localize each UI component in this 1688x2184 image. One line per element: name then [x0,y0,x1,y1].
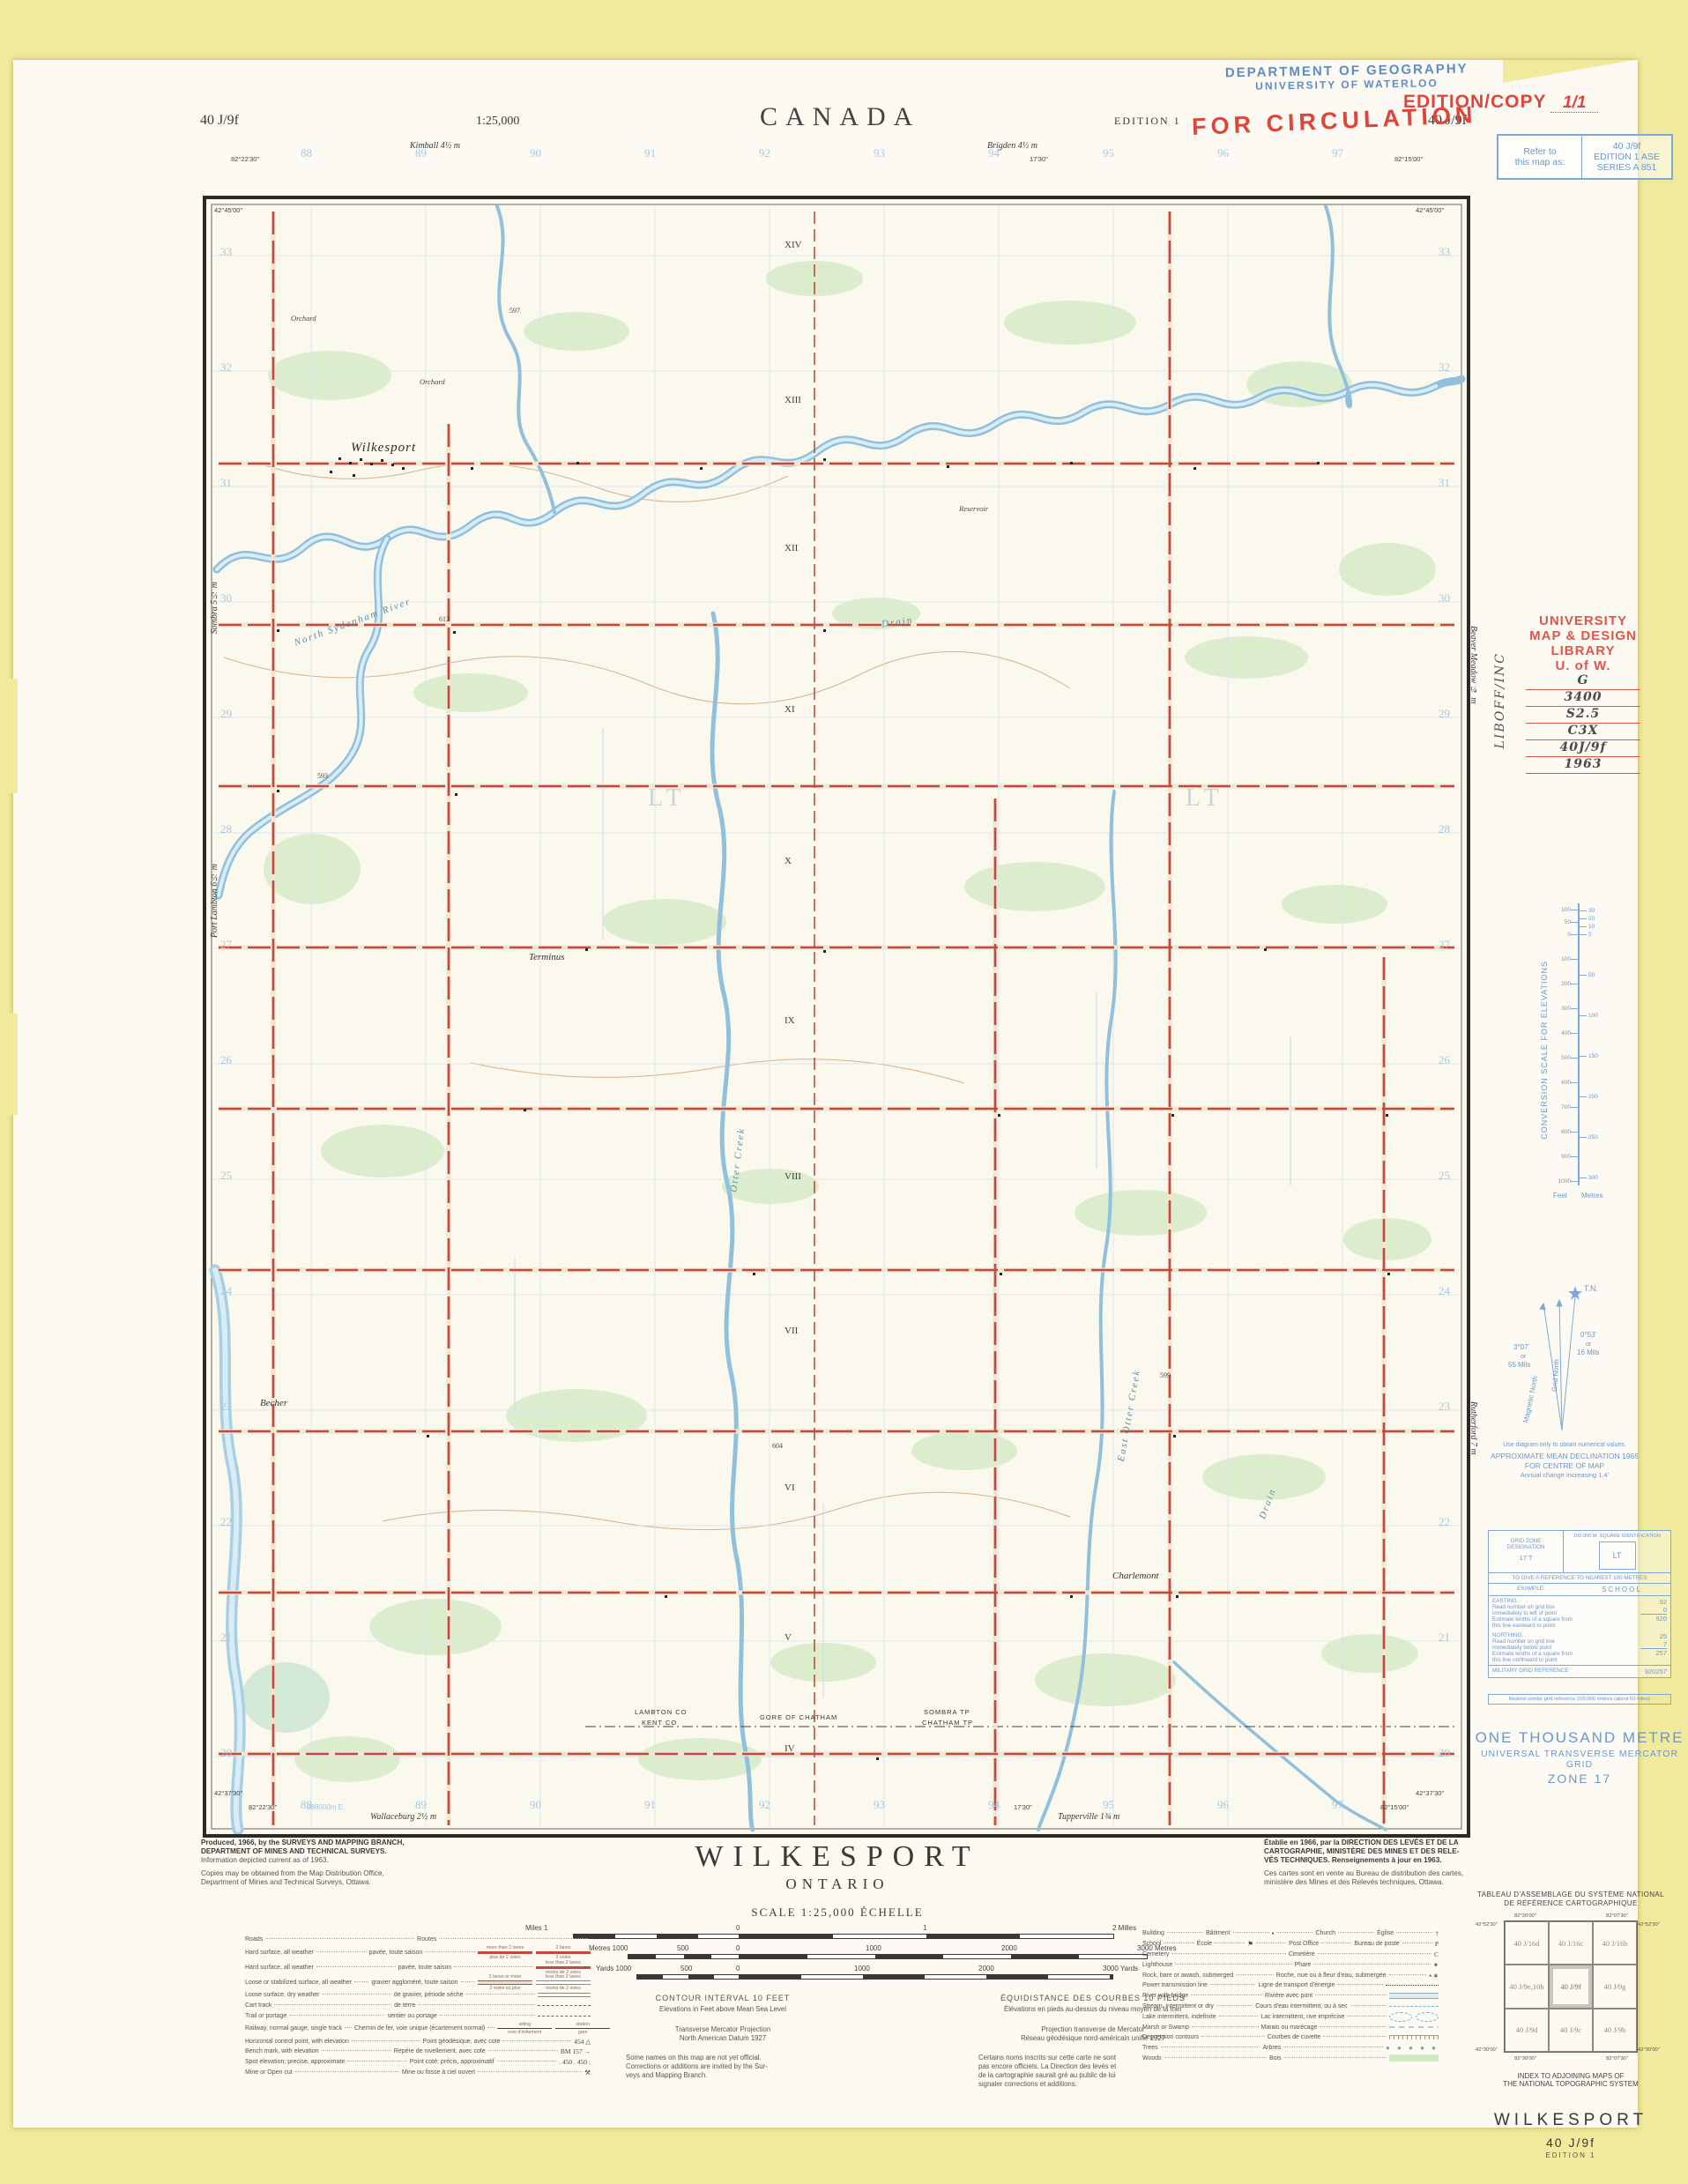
call-number-line: S2.5 [1526,707,1640,724]
credit-line: Établie en 1966, par la DIRECTION DES LE… [1264,1839,1484,1847]
legend-label-fr: Point géodésique, avec cote [423,2039,501,2045]
index-cell: 40 J/9c [1549,2009,1593,2052]
easting-text: this line eastward to point [1492,1623,1640,1629]
map-title: WILKESPORT [617,1840,1058,1874]
legend-row: Depression contoursCourbes de cuvette [1142,2032,1439,2043]
legend-row: Loose or stabilized surface, all weather… [245,1975,591,1990]
corner-coordinate: 82°22'30" [249,1803,277,1811]
mgr-label: MILITARY GRID REFERENCE [1492,1668,1568,1675]
utm-note-line: UNIVERSAL TRANSVERSE MERCATOR GRID [1474,1749,1685,1770]
legend-symbol: ▪ ∗ [1429,1972,1439,1980]
legend-label-fr: École [1197,1941,1213,1947]
miles-tick: 1 [923,1924,926,1932]
elevation-note-en: Elevations in Feet above Mean Sea Level [608,2005,837,2013]
projection-note-en: Transverse Mercator Projection [608,2025,837,2033]
northing-values: 25 7 257 [1640,1632,1667,1663]
call-number-line: G [1526,673,1640,690]
example-row: EXAMPLE: SCHOOL [1489,1584,1670,1596]
grid-reference-box: GRID ZONE DESIGNATION 17 T 100,000 M. SQ… [1488,1530,1671,1678]
mat-notch [7,679,18,793]
index-caption: INDEX TO ADJOINING MAPS OF [1474,2072,1668,2080]
legend-symbol-value: ▪ [1272,1929,1275,1937]
declination-note: APPROXIMATE MEAN DECLINATION 1965 [1459,1452,1670,1460]
easting-label: EASTING. [1492,1598,1640,1604]
easting-value: 92 [1640,1598,1667,1606]
footer-edition: EDITION 1 [1474,2151,1668,2159]
legend-row: Mine or Open cutMine ou fosse à ciel ouv… [245,2068,591,2078]
call-number-line: 1963 [1526,757,1640,774]
footer-identification: WILKESPORT 40 J/9f EDITION 1 [1474,2111,1668,2159]
index-cell: 40 J/9g [1593,1965,1637,2008]
magnetic-declination: 55 Mils [1508,1361,1530,1369]
legend-label-en: Cemetery [1142,1951,1169,1957]
names-note-en: Corrections or additions are invited by … [608,2062,855,2070]
sheet-number-left: 40 J/9f [200,113,239,129]
northing-label: NORTHING. [1492,1632,1640,1638]
legend-label-en: Woods [1142,2055,1162,2061]
declination-note: Annual change increasing 1.4' [1459,1471,1670,1479]
legend-symbol-value: 454 △ [574,2038,591,2046]
map-canvas [206,199,1467,1834]
legend-label-en: Marsh or Swamp [1142,2024,1189,2031]
northing-text: Estimate tenths of a square from [1492,1651,1640,1657]
legend-label-en: Power transmission line [1142,1982,1208,1988]
index-cell: 40 J/9d [1505,2009,1549,2052]
legend-label-fr: Chemin de fer, voie unique (écartement n… [354,2025,485,2032]
legend-label-en: Roads [245,1936,263,1943]
yards-tick: 0 [736,1965,740,1972]
credit-line: Department of Mines and Technical Survey… [201,1878,421,1887]
metres-unit: Metres [1581,1192,1602,1200]
legend-row: SchoolÉcole⚑Post OfficeBureau de posteP [1142,1939,1439,1950]
call-number-line: 40J/9f [1526,740,1640,757]
easting-text: immediately to left of point [1492,1610,1640,1616]
credit-line: Information depicted current as of 1963. [201,1856,421,1865]
legend-symbol-value: C [1434,1950,1439,1958]
miles-tick: 2 Milles [1112,1924,1136,1932]
map-title-block: WILKESPORT ONTARIO SCALE 1:25,000 ÉCHELL… [617,1840,1058,1920]
refer-line: 40 J/9f [1588,141,1666,152]
easting-total: 920 [1640,1615,1667,1623]
legend-label-en: Building [1142,1930,1164,1936]
index-map-title: TABLEAU D'ASSEMBLAGE DU SYSTÈME NATIONAL… [1474,1891,1668,1908]
yards-tick: 1000 [854,1965,870,1972]
grid-declination: or [1586,1341,1592,1348]
legend-row: LighthousePhare✶ [1142,1959,1439,1970]
legend-row: Hard surface, all weatherpavée, toute sa… [245,1960,591,1975]
legend-roads: RoadsRoutesHard surface, all weatherpavé… [245,1935,591,2077]
utm-note-line: ONE THOUSAND METRE [1474,1729,1685,1747]
legend-label-fr: Courbes de cuvette [1268,2034,1321,2040]
header-scale: 1:25,000 [476,115,519,129]
miles-bar-right [739,1934,1114,1939]
legend-label-en: Post Office [1289,1941,1319,1947]
library-stamp: UNIVERSITY MAP & DESIGN LIBRARY U. of W.… [1504,613,1662,774]
call-number: G3400S2.5C3X40J/9f1963 [1504,673,1662,774]
dept-geography-stamp: DEPARTMENT OF GEOGRAPHY UNIVERSITY OF WA… [1225,62,1469,93]
legend-label-fr: Bureau de poste [1354,1941,1399,1947]
northing-text: this line northward to point [1492,1657,1640,1663]
metres-tick: 2000 [1001,1944,1017,1952]
index-coord: 82°30'00" [1514,2056,1536,2061]
legend-label-fr: Point coté; précis, approximatif [410,2059,495,2065]
credit-line: ministère des Mines et des Relevés techn… [1264,1878,1484,1887]
easting-value: 0 [1640,1606,1667,1615]
index-title-line: TABLEAU D'ASSEMBLAGE DU SYSTÈME NATIONAL [1474,1891,1668,1899]
legend-row: TreesArbres● ● ● ● ● [1142,2043,1439,2054]
legend-label-en: Loose surface, dry weather [245,1992,319,1998]
call-number-line: C3X [1526,724,1640,740]
legend-label-fr: sentier ou portage [387,2013,436,2019]
legend-symbol-value: ⚒ [584,2069,591,2076]
legend-label-en: Hard surface, all weather [245,1950,314,1956]
metres-bar-right [739,1954,1148,1959]
legend-label-fr: Bois [1269,2055,1282,2061]
stamp-line: U. of W. [1504,658,1662,673]
legend-symbol-value: † [1435,1929,1439,1937]
legend-label-fr: Cimetière [1289,1951,1315,1957]
magnetic-north-label: Magnetic North [1521,1375,1539,1423]
legend-symbol [1389,2026,1439,2028]
legend-label-en: Railway, normal gauge, single track [245,2025,342,2032]
road-class-label: 2 lanes2 voies [536,1945,591,1960]
index-coord: 82°30'00" [1514,1913,1536,1919]
names-note-fr: de la cartographie saurait gré au public… [978,2071,1208,2079]
index-map: TABLEAU D'ASSEMBLAGE DU SYSTÈME NATIONAL… [1474,1891,1668,2159]
northing-text: immediately below point [1492,1645,1640,1651]
legend-label-fr: Phare [1295,1962,1312,1968]
refer-line: Refer to [1504,146,1576,157]
yards-tick: 3000 Yards [1103,1965,1138,1972]
legend-symbol-value: ✶ [1433,1961,1439,1969]
mgr-value: 920257 [1645,1668,1667,1675]
example-label: EXAMPLE: [1517,1586,1545,1593]
index-caption: THE NATIONAL TOPOGRAPHIC SYSTEM [1474,2080,1668,2088]
mat-notch [7,1014,18,1115]
refer-box-right: 40 J/9f EDITION 1 ASE SERIES A 851 [1581,136,1671,178]
legend-row: Rock, bare or awash, submergedRoche, nue… [1142,1970,1439,1980]
legend-symbol [1389,2035,1439,2039]
index-coord: 82°07'30" [1606,1913,1628,1919]
square-id-cell: 100,000 M. SQUARE IDENTIFICATION LT [1564,1531,1670,1572]
legend-label-en: Mine or Open cut [245,2069,293,2076]
legend-symbol: ✶ [1433,1961,1439,1969]
names-note-en: veys and Mapping Branch. [608,2071,855,2079]
legend-label-fr: de gravier, période sèche [394,1992,464,1998]
edition-copy-value: 1/1 [1550,93,1598,113]
index-cell: 40 J/9b [1593,2009,1637,2052]
legend-label-en: Rock, bare or awash, submerged [1142,1972,1233,1979]
index-coord: 42°52'30" [1476,1922,1498,1928]
call-number-line: 3400 [1526,690,1640,707]
metres-tick: 500 [677,1944,688,1952]
example-value: SCHOOL [1602,1586,1642,1593]
legend-label-en: Church [1315,1930,1335,1936]
footer-sheet-number: 40 J/9f [1474,2136,1668,2150]
grid-zone-label: GRID ZONE [1489,1538,1563,1544]
legend-symbol [1389,2012,1439,2022]
corner-coordinate: 82°15'00" [1380,1803,1409,1811]
legend-row: Hard surface, all weatherpavée, toute sa… [245,1945,591,1960]
credit-line: VÉS TECHNIQUES. Renseignements à jour en… [1264,1856,1484,1865]
declination-note: FOR CENTRE OF MAP [1459,1461,1670,1470]
legend-symbol [538,1993,591,1997]
topographic-map [203,196,1470,1838]
refer-box: Refer to this map as: 40 J/9f EDITION 1 … [1497,134,1673,180]
utm-note: ONE THOUSAND METRE UNIVERSAL TRANSVERSE … [1474,1729,1685,1786]
northing-text: Read number on grid line [1492,1638,1640,1645]
yards-tick: 500 [680,1965,692,1972]
tn-label: T.N. [1584,1284,1598,1293]
legend-label-en: Trees [1142,2045,1158,2051]
legend-symbol [1389,1993,1439,1999]
utm-note-line: ZONE 17 [1474,1772,1685,1786]
legend-row: Spot elevation; precise, approximatePoin… [245,2057,591,2068]
legend-label-fr: Église [1377,1930,1394,1936]
index-cell: 40 J/16d [1505,1921,1549,1965]
declination-diagram: T.N. 0°53' or 16 Mils 3°07' or 55 Mils G… [1476,1282,1662,1441]
corner-coordinate: 42°37'30" [1416,1789,1444,1797]
credits-french: Établie en 1966, par la DIRECTION DES LE… [1264,1839,1484,1887]
magnetic-declination: 3°07' [1513,1343,1530,1351]
legend-symbol: BM 157 → [561,2047,591,2055]
refer-line: EDITION 1 ASE [1588,152,1666,162]
legend-row: Stream, intermittent or dryCours d'eau i… [1142,2002,1439,2012]
legend-label-en: Trail or portage [245,2013,286,2019]
legend-symbol [1386,1985,1439,1986]
northing-value: 25 [1640,1632,1667,1640]
road-class-label: less than 2 lanesmoins de 2 voies [536,1974,591,1991]
legend-symbol-value: P [1435,1940,1439,1948]
credit-line: Ces cartes sont en vente au Bureau de di… [1264,1869,1484,1878]
legend-label-en: Bench mark, with elevation [245,2048,319,2054]
index-cell: 40 J/9e,10h [1505,1965,1549,2008]
corner-coordinate: 17'30" [1030,155,1048,163]
legend-label-fr: Cours d'eau intermittent, ou à sec [1255,2003,1347,2009]
road-class-label: 2 lanes or more2 voies ou plus [478,1974,532,1991]
index-coord: 42°30'00" [1638,2047,1660,2053]
corner-coordinate: 82°22'30" [231,155,259,163]
index-title-line: DE RÉFÉRENCE CARTOGRAPHIQUE [1474,1899,1668,1908]
legend-label-en: Depression contours [1142,2034,1199,2040]
legend-label-fr: Roche, nue ou à fleur d'eau, submergée [1276,1972,1387,1979]
legend-symbol-value: ⚑ [1247,1940,1253,1948]
legend-symbol: ⚒ [584,2069,591,2076]
contour-note-en: CONTOUR INTERVAL 10 FEET [608,1994,837,2002]
legend-symbol: 2 lanes or more2 voies ou plusless than … [478,1974,591,1991]
legend-row: Lake intermittent, indefiniteLac intermi… [1142,2011,1439,2022]
datum-note-en: North American Datum 1927 [608,2034,837,2042]
legend-label-en: River with bridge [1142,1993,1188,1999]
metres-label: Metres 1000 [589,1944,628,1952]
legend-label-fr: Ligne de transport d'énergie [1258,1982,1335,1988]
false-easting-label: 388000m E. [307,1803,345,1811]
road-class-label: sidingvoie d'évitement [497,2022,552,2036]
legend-symbol: . 450 . 450 : [559,2058,591,2066]
miles-tick: 0 [736,1924,740,1932]
legend-row: Power transmission lineLigne de transpor… [1142,1980,1439,1991]
metres-bar-left [628,1954,740,1959]
corner-coordinate: 42°37'30" [214,1789,242,1797]
legend-row: Railway, normal gauge, single trackChemi… [245,2021,591,2036]
corner-coordinate: 17'30" [1014,1803,1032,1811]
legend-row: Trail or portagesentier ou portage [245,2010,591,2021]
legend-symbol-value: ▪ ∗ [1429,1972,1439,1980]
credit-line: CARTOGRAPHIE, MINISTÈRE DES MINES ET DES… [1264,1847,1484,1856]
legend-row: Loose surface, dry weatherde gravier, pé… [245,1990,591,2001]
yards-bar-left [636,1974,740,1980]
index-coord: 42°52'30" [1638,1922,1660,1928]
credit-line: DEPARTMENT OF MINES AND TECHNICAL SURVEY… [201,1847,421,1856]
legend-symbol: ⚑ [1247,1940,1253,1948]
legend-row: WoodsBois [1142,2054,1439,2064]
yards-bar-right [739,1974,1113,1980]
easting-row: EASTING. Read number on grid line immedi… [1489,1596,1670,1631]
northing-total: 257 [1640,1649,1667,1657]
yards-label: Yards 1000 [596,1965,631,1972]
legend-symbol [538,2016,591,2017]
refer-line: this map as: [1504,157,1576,167]
country-title: CANADA [760,102,920,132]
feet-unit: Feet [1553,1192,1567,1200]
legend-label-fr: Marais ou marécage [1261,2024,1318,2031]
legend-label-en: Horizontal control point, with elevation [245,2039,349,2045]
legend-label-en: Spot elevation; precise, approximate [245,2059,345,2065]
legend-symbol-value: . 450 . 450 : [559,2058,591,2066]
legend-label-fr: Rivière avec pont [1265,1993,1312,1999]
legend-label-en: Hard surface, all weather [245,1965,314,1971]
easting-text: Estimate tenths of a square from [1492,1616,1640,1623]
legend-symbol [1389,2006,1439,2007]
grid-declination: 16 Mils [1577,1348,1599,1356]
legend-label-fr: Arbres [1262,2045,1281,2051]
easting-text: Read number on grid line [1492,1604,1640,1610]
footer-map-name: WILKESPORT [1474,2111,1668,2130]
legend-symbol-value: BM 157 → [561,2047,591,2055]
legend-features: BuildingBâtiment▪ChurchÉglise†SchoolÉcol… [1142,1928,1439,2063]
legend-label-en: Loose or stabilized surface, all weather [245,1980,352,1986]
legend-row: RoadsRoutes [245,1935,591,1945]
grid-reference-footer: Nearest similar grid reference 100,000 m… [1488,1694,1671,1705]
grid-zone-label: DESIGNATION [1489,1544,1563,1550]
legend-row: Bench mark, with elevationRepère de nive… [245,2047,591,2057]
road-class-label: stationgare [555,2022,610,2036]
grid-zone-row: GRID ZONE DESIGNATION 17 T 100,000 M. SQ… [1489,1531,1670,1573]
legend-row: Marsh or SwampMarais ou marécage [1142,2022,1439,2032]
index-cell-current: 40 J/9f [1549,1965,1593,2008]
edition-label: EDITION 1 [1114,115,1181,128]
legend-label-fr: Mine ou fosse à ciel ouvert [402,2069,475,2076]
reference-header: TO GIVE A REFERENCE TO NEAREST 100 METRE… [1489,1573,1670,1584]
yards-tick: 2000 [978,1965,994,1972]
square-id-value: LT [1599,1541,1636,1570]
index-map-grid: 40 J/16d40 J/16c40 J/16b40 J/9e,10h40 J/… [1504,1920,1638,2053]
legend-label-fr: gravier aggloméré, toute saison [371,1980,457,1986]
legend-label-en: Stream, intermittent or dry [1142,2003,1214,2009]
legend-symbol [538,2005,591,2006]
magnetic-declination: or [1521,1354,1527,1360]
legend-label-fr: pavée, toute saison [369,1950,423,1956]
index-coord: 82°07'30" [1606,2056,1628,2061]
credit-line: Produced, 1966, by the SURVEYS AND MAPPI… [201,1839,421,1847]
index-cell: 40 J/16c [1549,1921,1593,1965]
legend-row: Horizontal control point, with elevation… [245,2036,591,2047]
metres-tick: 1000 [866,1944,881,1952]
legend-row: Cart trackde terre [245,2001,591,2011]
square-id-label: 100,000 M. SQUARE IDENTIFICATION [1564,1534,1670,1539]
credit-line: Copies may be obtained from the Map Dist… [201,1869,421,1878]
grid-north-label: Grid North [1550,1359,1561,1392]
legend-label-en: Cart track [245,2002,271,2009]
legend-label-en: School [1142,1941,1161,1947]
legend-label-fr: Bâtiment [1206,1930,1231,1936]
legend-label-fr: pavée, toute saison [398,1965,452,1971]
refer-box-left: Refer to this map as: [1498,136,1581,178]
legend-symbol: more than 2 lanesplus de 2 voies2 lanes2… [478,1945,591,1961]
credits-english: Produced, 1966, by the SURVEYS AND MAPPI… [201,1839,421,1887]
legend-label-fr: de terre [394,2002,415,2009]
names-note-en: Some names on this map are not yet offic… [608,2054,855,2061]
legend-label-en: Lake intermittent, indefinite [1142,2014,1216,2020]
northing-value: 7 [1640,1640,1667,1649]
refer-line: SERIES A 851 [1588,162,1666,173]
legend-symbol [1389,2054,1439,2061]
road-class-label: less than 2 lanesmoins de 2 voies [536,1960,591,1975]
names-note-fr: signaler corrections et additions. [978,2080,1208,2088]
easting-values: 92 0 920 [1640,1598,1667,1629]
legend-symbol: ● ● ● ● ● [1386,2044,1439,2052]
index-coord: 42°30'00" [1476,2047,1498,2053]
mgr-row: MILITARY GRID REFERENCE 920257 [1489,1665,1670,1677]
legend-label-fr: Lac intermittent, rive imprécise [1260,2014,1344,2020]
corner-coordinate: 42°45'00" [1416,206,1444,214]
legend-symbol: sidingvoie d'évitementstationgare [497,2022,610,2036]
miles-label: Miles 1 [525,1924,547,1932]
legend-label-fr: Repère de nivellement, avec cote [394,2048,486,2054]
scale-title: SCALE 1:25,000 ÉCHELLE [617,1905,1058,1920]
legend-row: River with bridgeRivière avec pont [1142,1991,1439,2002]
legend-label-en: Lighthouse [1142,1962,1172,1968]
metres-tick: 0 [736,1944,740,1952]
corner-coordinate: 42°45'00" [214,206,242,214]
miles-bar-left [573,1934,740,1939]
index-cell: 40 J/16b [1593,1921,1637,1965]
legend-symbol: 454 △ [574,2038,591,2046]
grid-zone-value: 17 T [1489,1554,1563,1562]
legend-symbol: ▪ [1272,1929,1275,1937]
legend-label-fr: Routes [417,1936,436,1943]
stamp-line: LIBRARY [1504,643,1662,658]
grid-declination: 0°53' [1580,1331,1597,1339]
map-subtitle: ONTARIO [617,1876,1058,1893]
handwritten-side-note: LIBOFF/INC [1493,652,1507,749]
road-class-label: more than 2 lanesplus de 2 voies [478,1945,532,1961]
grid-zone-cell: GRID ZONE DESIGNATION 17 T [1489,1531,1564,1572]
corner-coordinate: 82°15'00" [1394,155,1423,163]
legend-symbol: less than 2 lanesmoins de 2 voies [536,1960,591,1975]
legend-row: CemeteryCimetièreC [1142,1950,1439,1960]
stamp-line: UNIVERSITY [1504,613,1662,628]
conversion-scale-caption: CONVERSION SCALE FOR ELEVATIONS [1540,961,1549,1140]
stamp-line: MAP & DESIGN [1504,628,1662,643]
conversion-scale-ruler [1578,903,1580,1185]
paper-corner-cut [1503,60,1635,83]
declination-note: Use diagram only to obtain numerical val… [1459,1442,1670,1448]
legend-row: BuildingBâtiment▪ChurchÉglise† [1142,1928,1439,1939]
legend-symbol: C [1434,1950,1439,1958]
northing-row: NORTHING. Read number on grid line immed… [1489,1631,1670,1665]
